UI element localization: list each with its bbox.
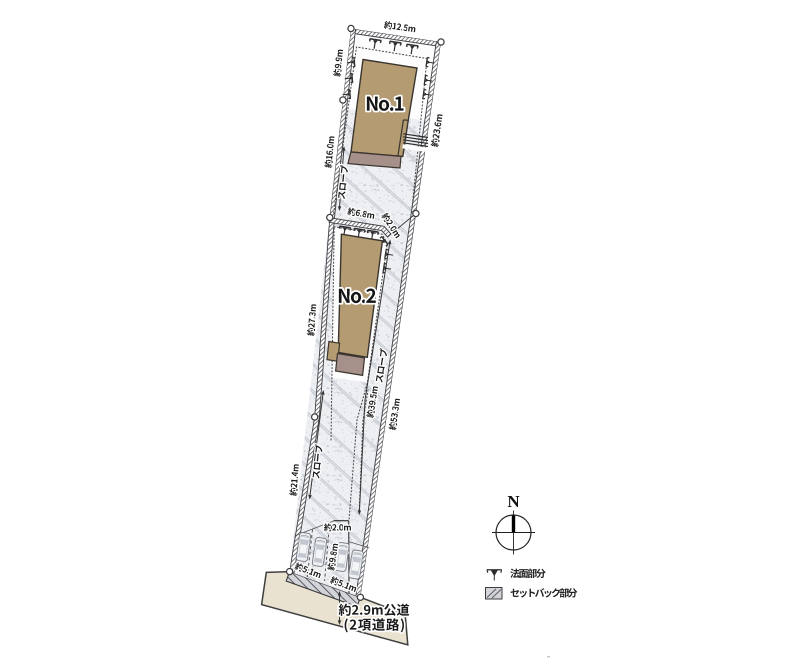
svg-text:N: N [507, 492, 520, 511]
